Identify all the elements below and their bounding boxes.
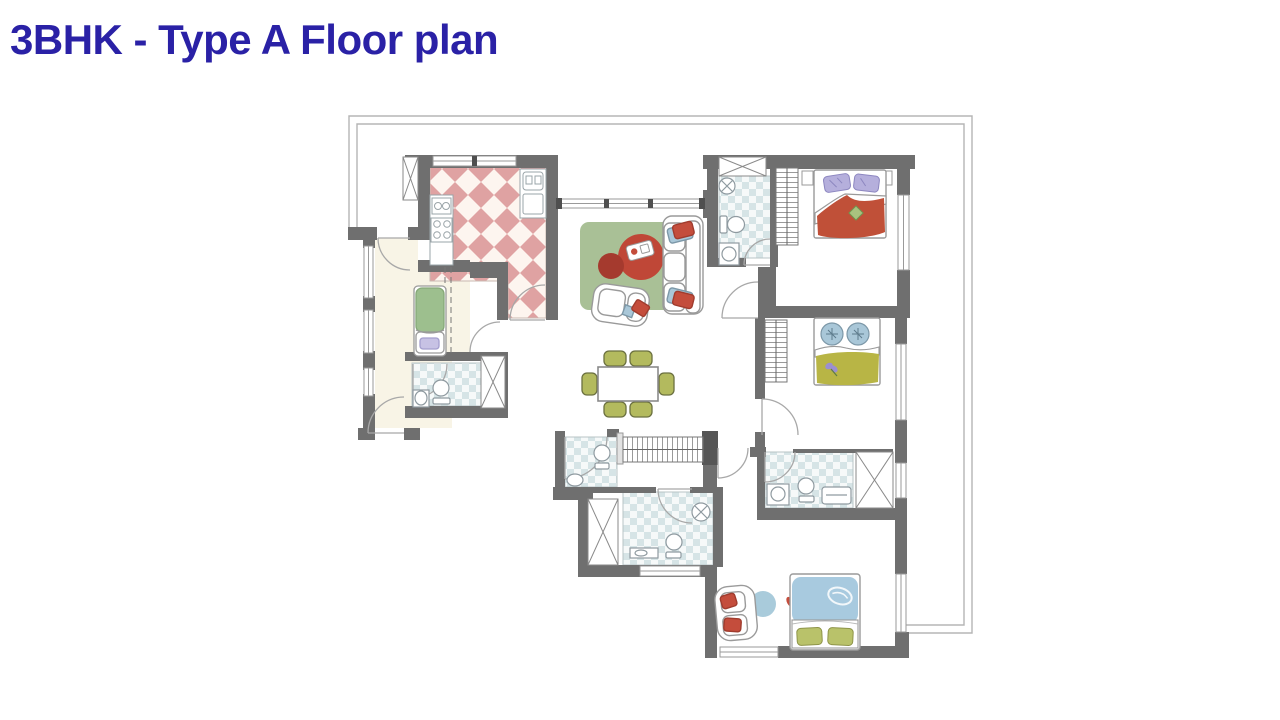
bed-pillow [797,627,823,645]
nightstand [802,171,813,185]
toilet-icon [798,478,814,502]
bedroom1-window [898,195,909,270]
sink-icon [567,474,583,486]
shower-head-icon [692,503,710,521]
toilet-icon [594,445,610,469]
kitchen-window [433,156,516,166]
wardrobe-bedroom2 [765,320,787,382]
sink-icon [413,390,429,407]
side-table [598,253,624,279]
shaft-shared-bath [856,452,893,508]
vanity-icon [630,548,658,558]
bed-pillow [828,627,854,645]
living-room-window [556,198,705,209]
armchair [714,584,759,641]
shaft-corridor [588,499,618,565]
bedroom1-door [722,282,758,318]
bed-pillow [853,174,880,193]
shaft-maid-bath [481,356,505,408]
foyer-windows [364,246,373,396]
living-room [580,216,703,328]
bedroom-1 [802,170,892,238]
dining-area [582,351,674,417]
kitchen-stove [431,218,452,242]
daybed [414,286,446,356]
vanity-icon [822,487,851,504]
shaft-ensuite [719,157,766,176]
master-bottom-window [720,647,778,657]
shared-bathroom-window [896,463,906,498]
passage-door [470,322,500,352]
master-bedroom-door [718,448,748,478]
master-bathroom-window [640,566,700,576]
floor-plan [0,0,1280,720]
dining-table [598,367,658,401]
bed-blanket [816,352,879,385]
sofa [663,216,703,314]
master-bedroom-window [896,574,906,632]
toilet-icon [720,216,745,233]
bed-blanket [792,577,858,623]
kitchen-fridge [523,172,543,190]
bed-pillow [823,173,851,193]
toilet-icon [433,380,450,404]
sink-icon [719,243,739,265]
sink-icon [767,484,789,505]
toilet-icon [666,534,682,558]
bedroom-2 [814,318,880,385]
double-bed [814,318,880,385]
shaft-kitchen [403,157,418,200]
master-bedroom [714,574,860,650]
armchair [590,282,652,328]
master-door-wall-block [702,431,718,465]
kitchen-sink [432,198,451,214]
wardrobe-corridor [617,433,703,464]
double-bed [790,574,860,650]
double-bed [814,170,886,238]
bedroom2-window [896,344,906,420]
wardrobe-bedroom1 [776,168,798,245]
shower-head-icon [719,178,735,194]
bedroom2-door [762,399,798,435]
